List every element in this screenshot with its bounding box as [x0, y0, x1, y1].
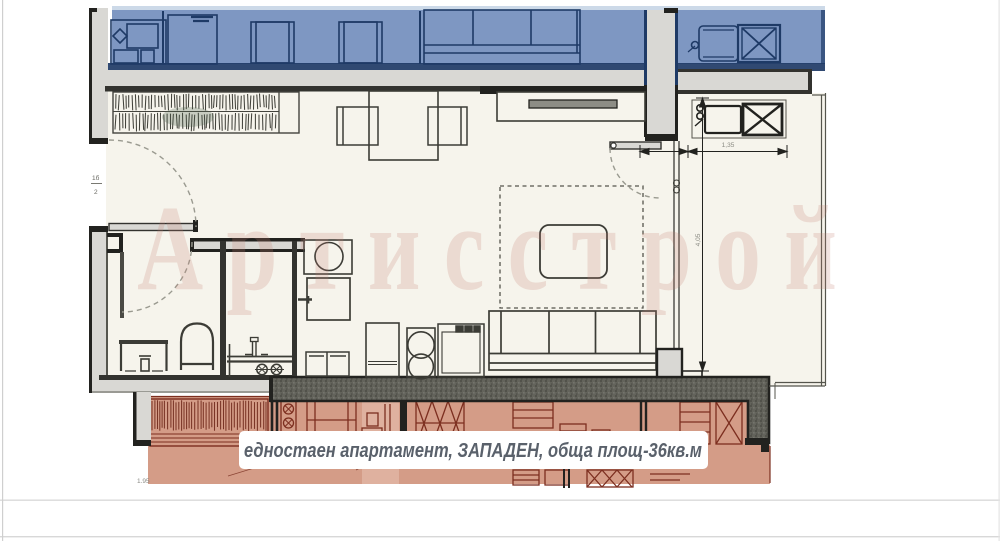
svg-text:4,05: 4,05 — [695, 233, 702, 246]
svg-text:едностаен апартамент, ЗАПАДЕН,: едностаен апартамент, ЗАПАДЕН, обща площ… — [244, 440, 702, 462]
svg-text:1б: 1б — [92, 174, 100, 182]
svg-text:1,35: 1,35 — [722, 142, 735, 149]
svg-text:1.95: 1.95 — [137, 478, 150, 485]
svg-text:2: 2 — [94, 189, 98, 196]
